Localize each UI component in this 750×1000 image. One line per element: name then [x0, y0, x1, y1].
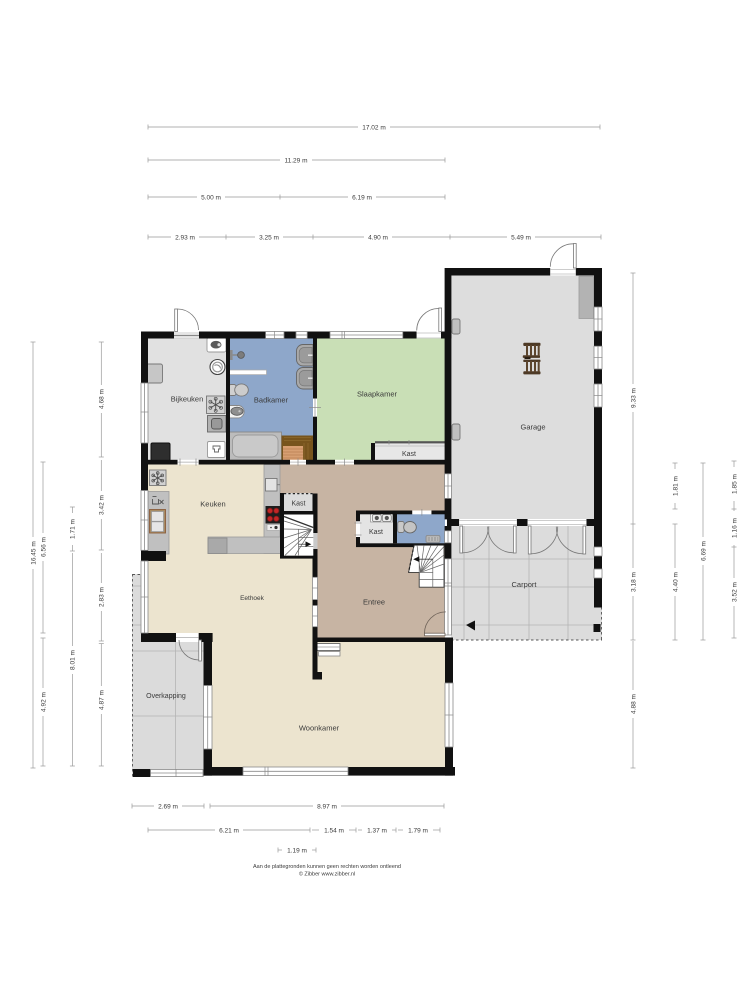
- svg-text:4.68 m: 4.68 m: [99, 389, 106, 409]
- svg-text:3.25 m: 3.25 m: [259, 235, 279, 242]
- svg-text:4.92 m: 4.92 m: [40, 692, 47, 712]
- svg-text:Kast: Kast: [369, 529, 383, 536]
- svg-text:4.40 m: 4.40 m: [672, 572, 679, 592]
- svg-text:6.56 m: 6.56 m: [40, 537, 47, 557]
- svg-text:1.37 m: 1.37 m: [367, 828, 387, 835]
- svg-text:1.19 m: 1.19 m: [287, 848, 307, 855]
- svg-text:Woonkamer: Woonkamer: [299, 724, 340, 733]
- svg-text:Bijkeuken: Bijkeuken: [171, 395, 204, 404]
- svg-text:1.71 m: 1.71 m: [70, 519, 77, 539]
- svg-text:17.02 m: 17.02 m: [362, 125, 386, 132]
- svg-text:2.69 m: 2.69 m: [158, 804, 178, 811]
- svg-text:Kast: Kast: [402, 451, 416, 458]
- svg-text:3.18 m: 3.18 m: [630, 572, 637, 592]
- svg-text:1.81 m: 1.81 m: [672, 476, 679, 496]
- svg-text:9.33 m: 9.33 m: [630, 388, 637, 408]
- svg-text:6.21 m: 6.21 m: [219, 828, 239, 835]
- svg-text:Entree: Entree: [363, 598, 385, 607]
- svg-text:1.54 m: 1.54 m: [324, 828, 344, 835]
- svg-text:Keuken: Keuken: [200, 500, 225, 509]
- svg-text:3.52 m: 3.52 m: [731, 582, 738, 602]
- svg-text:4.90 m: 4.90 m: [368, 235, 388, 242]
- svg-text:Eethoek: Eethoek: [240, 595, 265, 602]
- svg-text:Carport: Carport: [511, 580, 537, 589]
- svg-text:3.42 m: 3.42 m: [99, 495, 106, 515]
- svg-text:1.79 m: 1.79 m: [408, 828, 428, 835]
- svg-text:2.93 m: 2.93 m: [175, 235, 195, 242]
- svg-text:4.87 m: 4.87 m: [99, 690, 106, 710]
- svg-text:5.00 m: 5.00 m: [201, 195, 221, 202]
- svg-text:Kast: Kast: [291, 501, 305, 508]
- svg-text:6.69 m: 6.69 m: [700, 541, 707, 561]
- svg-text:2.83 m: 2.83 m: [99, 587, 106, 607]
- svg-text:6.19 m: 6.19 m: [352, 195, 372, 202]
- svg-text:Badkamer: Badkamer: [254, 396, 289, 405]
- svg-text:16.45 m: 16.45 m: [30, 541, 37, 565]
- svg-text:Overkapping: Overkapping: [146, 693, 186, 700]
- svg-text:1.16 m: 1.16 m: [731, 518, 738, 538]
- svg-text:1.85 m: 1.85 m: [731, 474, 738, 494]
- svg-text:5.49 m: 5.49 m: [511, 235, 531, 242]
- svg-text:Slaapkamer: Slaapkamer: [357, 390, 398, 399]
- svg-text:Garage: Garage: [520, 423, 545, 432]
- svg-text:8.97 m: 8.97 m: [317, 804, 337, 811]
- svg-text:Aan de plattegronden kunnen ge: Aan de plattegronden kunnen geen rechten…: [253, 864, 401, 870]
- svg-text:© Zibber www.zibber.nl: © Zibber www.zibber.nl: [299, 871, 355, 878]
- svg-text:11.29 m: 11.29 m: [284, 158, 307, 165]
- svg-text:4.88 m: 4.88 m: [630, 694, 637, 714]
- svg-text:8.01 m: 8.01 m: [70, 650, 77, 670]
